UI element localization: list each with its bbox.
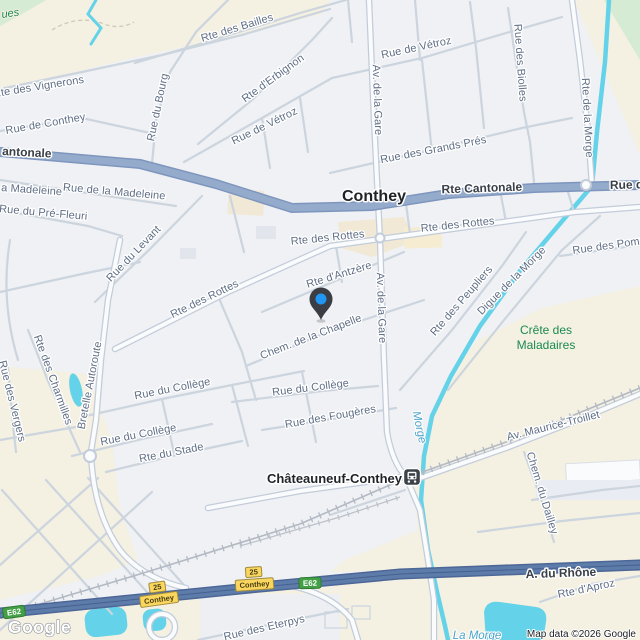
map-canvas[interactable]: E62 E62 25 Conthey 25 Conthey antonale R… [0, 0, 640, 640]
roundabout [376, 234, 385, 243]
shield-route-number: 25 [153, 582, 163, 592]
water-label-la-morge: La Morge [453, 630, 502, 640]
map-attribution: Map data ©2026 Google [527, 629, 637, 640]
street-label-rte-cantonale: Rte Cantonale [441, 180, 522, 197]
pond [84, 606, 129, 638]
street-label-av-de-la-gare-mid: Av. de la Gare [374, 272, 388, 343]
train-station-icon[interactable] [404, 469, 421, 486]
area-label-partial-nw: ues [1, 7, 21, 21]
shield-route-number: 25 [249, 567, 258, 577]
shield-e62-label: E62 [303, 579, 318, 589]
google-logo[interactable]: Google [8, 617, 71, 637]
street-label-av-de-la-gare-north: Av. de la Gare [370, 64, 384, 135]
area-label-maladaires: Maladaires [517, 338, 576, 352]
urban-patch-south [200, 594, 340, 640]
town-label-chateauneuf-conthey[interactable]: Châteauneuf-Conthey [267, 471, 403, 486]
street-label-rue-d-east: Rue d [610, 177, 640, 192]
area-label-crete-des: Crête des [520, 323, 572, 337]
pin-dot [316, 294, 327, 305]
building [256, 226, 276, 239]
street-label-a-du-rhone: A. du Rhône [525, 565, 596, 581]
town-label-conthey[interactable]: Conthey [342, 188, 406, 205]
roundabout [581, 180, 591, 190]
shield-e62-east: E62 [299, 577, 321, 589]
street-label-rte-cantonale-west: antonale [2, 144, 52, 161]
building [180, 248, 196, 259]
roundabout [84, 450, 96, 462]
